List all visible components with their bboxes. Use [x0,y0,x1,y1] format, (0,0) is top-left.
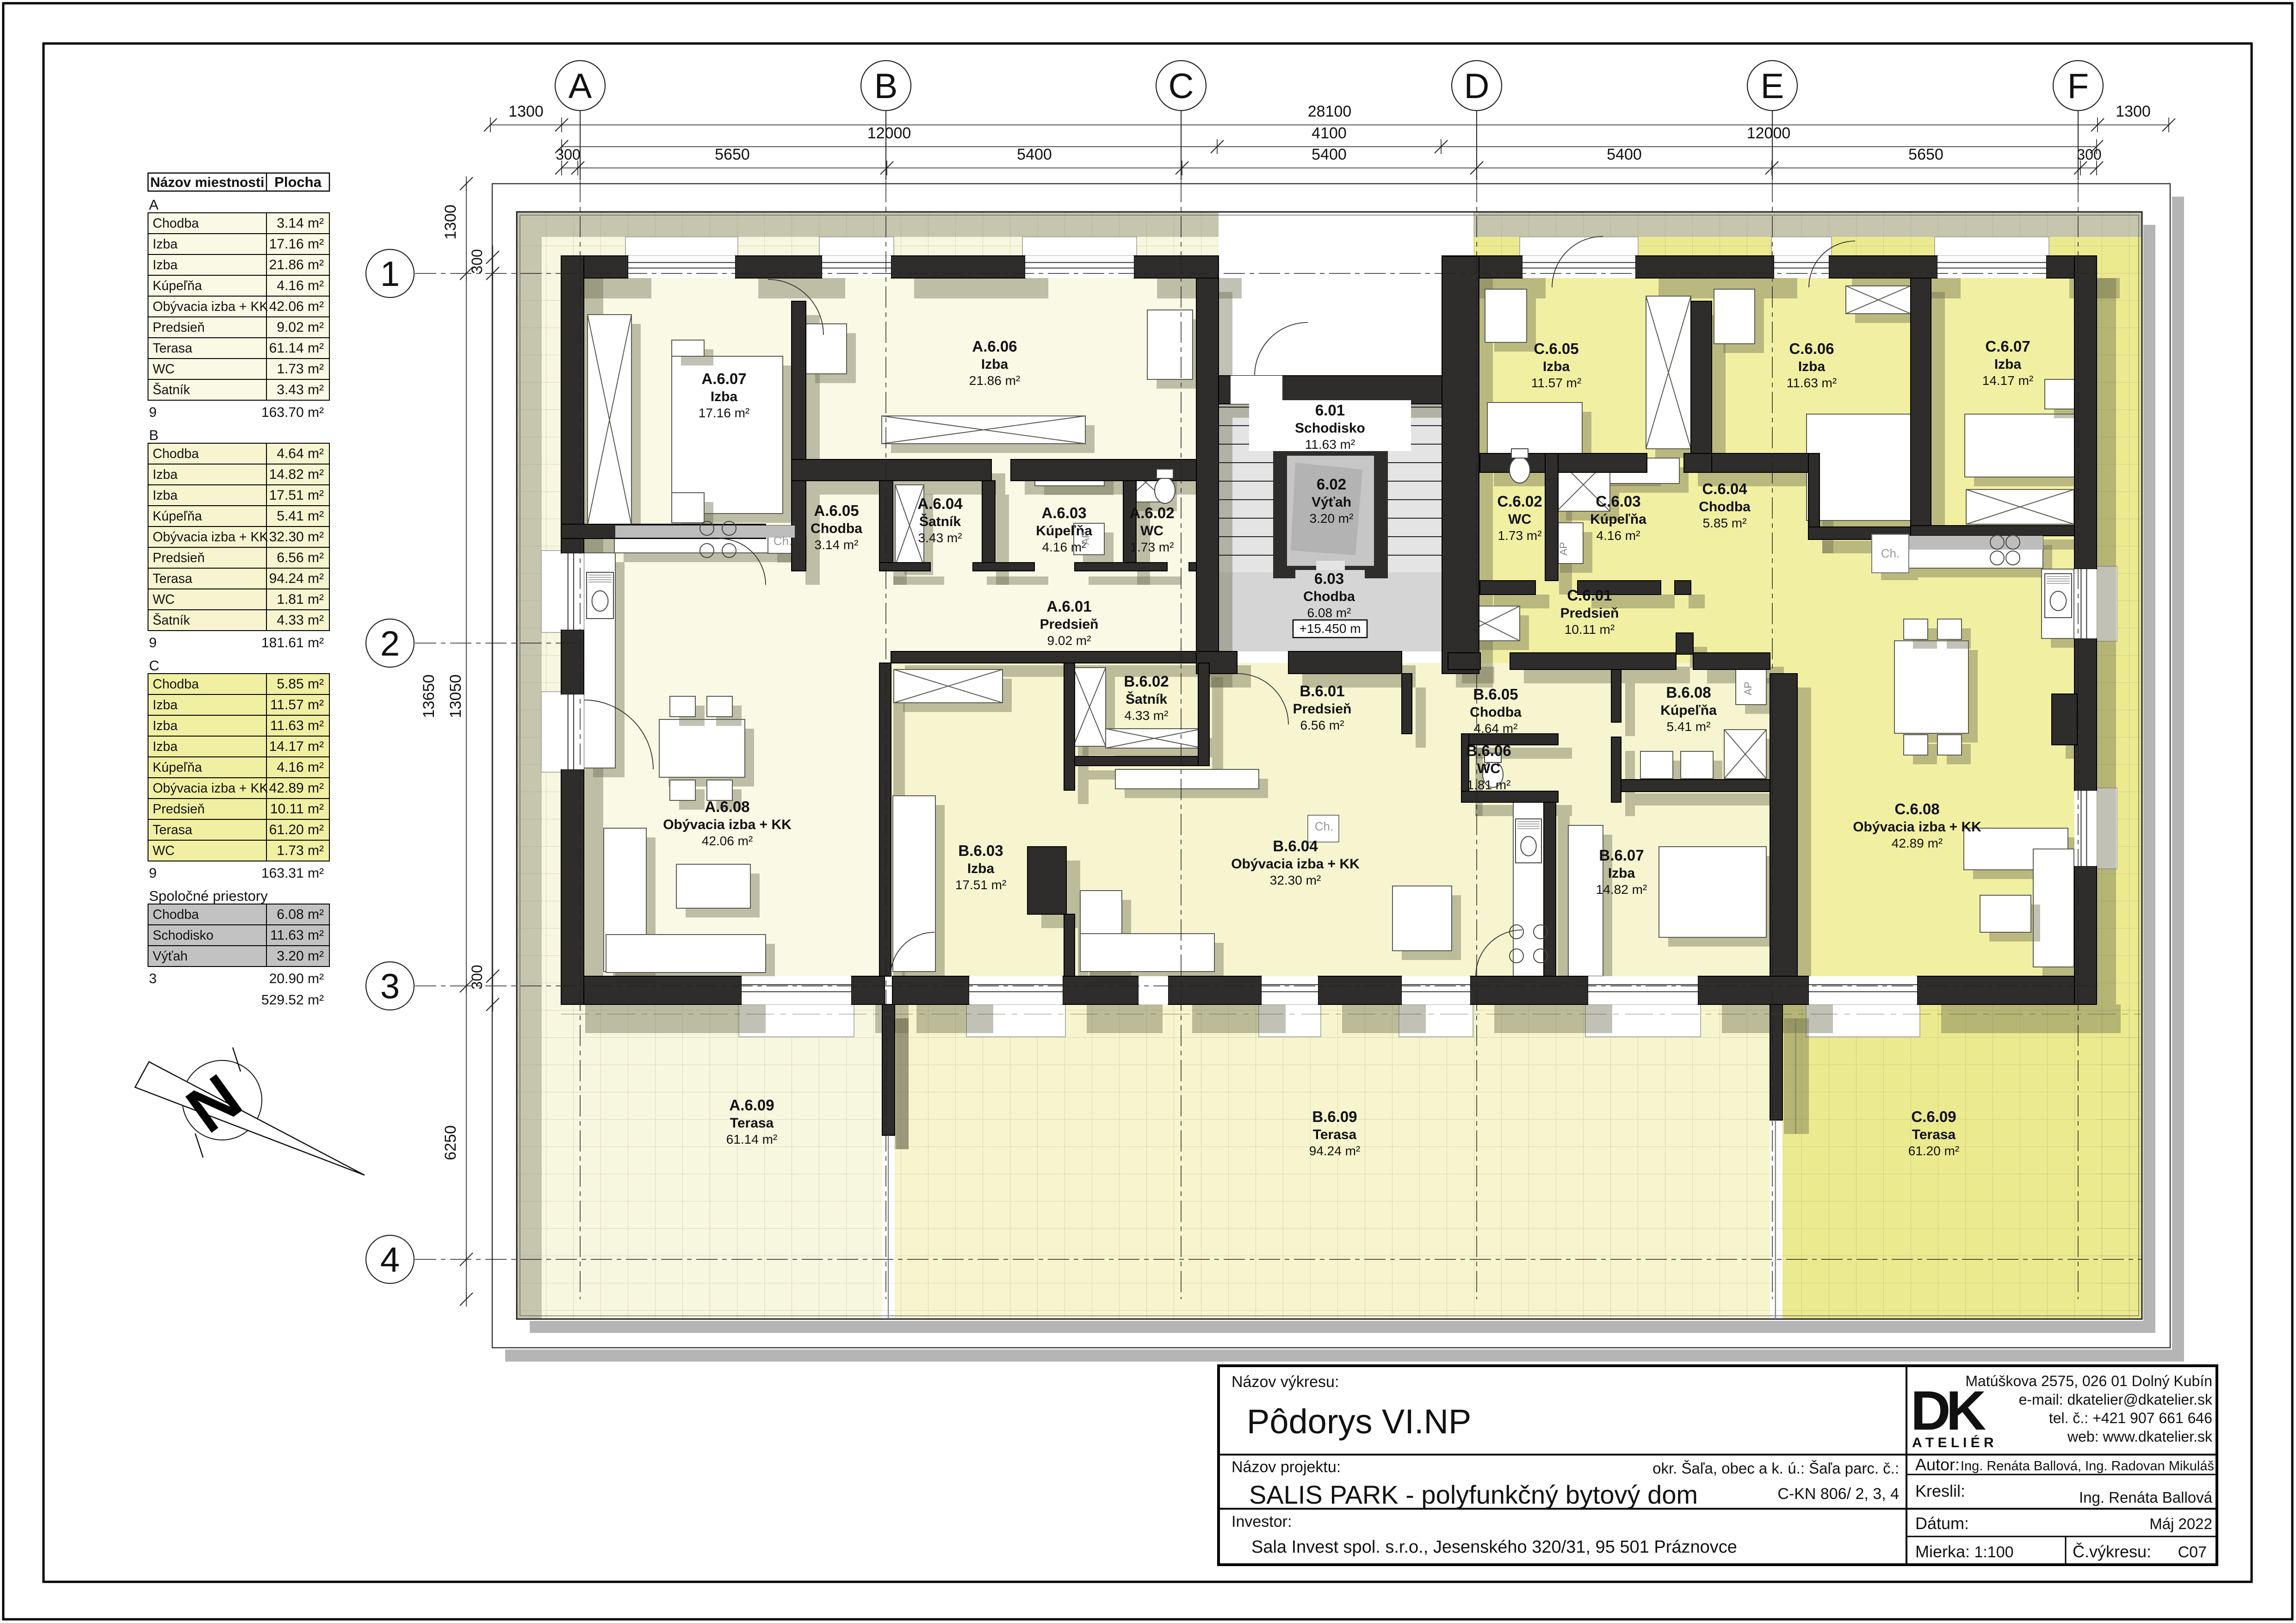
svg-text:WC: WC [153,843,174,858]
svg-text:A.6.06: A.6.06 [972,338,1017,355]
svg-text:Terasa: Terasa [153,823,192,837]
svg-text:5650: 5650 [1908,146,1943,163]
svg-text:300: 300 [469,249,485,273]
svg-text:9: 9 [149,635,157,650]
svg-text:9: 9 [149,866,157,881]
svg-text:1300: 1300 [442,204,459,240]
svg-text:11.63 m²: 11.63 m² [1305,437,1355,452]
svg-text:28100: 28100 [1308,103,1352,120]
svg-text:20.90 m²: 20.90 m² [269,971,324,986]
svg-text:B.6.04: B.6.04 [1273,837,1318,855]
svg-text:13050: 13050 [447,675,464,719]
svg-text:3.43 m²: 3.43 m² [918,531,962,545]
svg-text:21.86 m²: 21.86 m² [269,257,324,273]
svg-text:Výťah: Výťah [153,949,188,964]
svg-text:Chodba: Chodba [153,677,199,692]
svg-text:A.6.04: A.6.04 [917,495,963,512]
svg-text:6.03: 6.03 [1314,570,1344,587]
svg-text:61.14 m²: 61.14 m² [269,341,324,356]
svg-text:42.89 m²: 42.89 m² [269,781,324,796]
svg-text:4.33 m²: 4.33 m² [1125,708,1169,723]
svg-text:AP: AP [1742,681,1754,695]
svg-text:3.20 m²: 3.20 m² [277,948,324,964]
svg-text:Obývacia izba + KK: Obývacia izba + KK [153,781,268,796]
svg-text:tel. č.: +421 907 661 646: tel. č.: +421 907 661 646 [2049,1410,2212,1426]
svg-text:5.41 m²: 5.41 m² [277,508,324,524]
svg-text:A.6.03: A.6.03 [1041,504,1086,521]
svg-text:C.6.03: C.6.03 [1596,493,1640,510]
svg-text:14.82 m²: 14.82 m² [269,467,324,482]
svg-text:Autor:: Autor: [1915,1455,1960,1474]
svg-text:11.63 m²: 11.63 m² [270,928,324,943]
svg-text:e-mail: dkatelier@dkatelier.sk: e-mail: dkatelier@dkatelier.sk [2019,1391,2213,1408]
svg-text:Izba: Izba [153,719,178,733]
svg-text:32.30 m²: 32.30 m² [269,529,324,545]
svg-text:4100: 4100 [1312,124,1347,142]
svg-text:Izba: Izba [967,861,995,876]
svg-text:Chodba: Chodba [811,521,862,536]
svg-text:Predsieň: Predsieň [153,802,204,817]
svg-text:B.6.09: B.6.09 [1312,1108,1357,1125]
svg-text:300: 300 [556,146,580,163]
svg-text:WC: WC [153,592,174,607]
svg-text:B.6.02: B.6.02 [1124,673,1169,690]
svg-text:B: B [149,427,159,443]
svg-text:B.6.05: B.6.05 [1473,686,1518,703]
svg-text:Ch.: Ch. [774,534,792,548]
svg-text:2: 2 [380,624,400,663]
svg-text:+15.450 m: +15.450 m [1299,621,1361,636]
svg-text:6.56 m²: 6.56 m² [277,550,324,565]
svg-text:Izba: Izba [1543,359,1570,374]
svg-text:61.14 m²: 61.14 m² [726,1132,778,1146]
svg-text:529.52 m²: 529.52 m² [261,992,324,1008]
svg-text:5400: 5400 [1607,146,1642,163]
svg-text:Pôdorys VI.NP: Pôdorys VI.NP [1247,1402,1471,1441]
svg-text:Obývacia izba + KK: Obývacia izba + KK [1853,819,1981,835]
svg-text:Šatník: Šatník [153,383,191,397]
svg-text:C: C [149,657,159,674]
svg-text:Predsieň: Predsieň [1560,606,1619,621]
svg-text:Terasa: Terasa [1912,1127,1956,1142]
svg-text:Názov miestnosti: Názov miestnosti [150,175,265,190]
svg-text:A.6.08: A.6.08 [705,798,749,815]
svg-text:Kúpeľňa: Kúpeľňa [1660,703,1717,718]
svg-text:WC: WC [1508,512,1531,527]
svg-text:Chodba: Chodba [153,216,199,231]
svg-text:A T E L I É R: A T E L I É R [1912,1435,1994,1450]
svg-text:A.6.01: A.6.01 [1046,598,1091,615]
svg-text:Spoločné priestory: Spoločné priestory [149,888,268,904]
svg-text:Ch.: Ch. [1881,546,1900,560]
svg-text:Schodisko: Schodisko [1295,421,1365,436]
svg-text:14.82 m²: 14.82 m² [1596,882,1647,897]
svg-text:C.6.05: C.6.05 [1534,340,1578,357]
svg-text:Obývacia izba + KK: Obývacia izba + KK [153,299,268,314]
svg-text:okr. Šaľa, obec a k. ú.: Šaľa: okr. Šaľa, obec a k. ú.: Šaľa parc. č.: [1652,1460,1899,1477]
svg-text:1.73 m²: 1.73 m² [1130,540,1174,554]
svg-text:10.11 m²: 10.11 m² [270,801,324,817]
svg-text:B.6.01: B.6.01 [1300,682,1344,700]
svg-text:C.6.04: C.6.04 [1702,480,1747,497]
svg-text:11.63 m²: 11.63 m² [1787,376,1837,390]
svg-text:Názov projektu:: Názov projektu: [1232,1458,1341,1476]
svg-text:Matúškova 2575, 026 01 Dolný K: Matúškova 2575, 026 01 Dolný Kubín [1965,1373,2212,1389]
svg-text:4.64 m²: 4.64 m² [277,446,324,461]
svg-text:Chodba: Chodba [1470,705,1522,720]
svg-text:11.63 m²: 11.63 m² [270,718,324,733]
svg-text:F: F [2067,67,2089,106]
svg-text:1.73 m²: 1.73 m² [277,843,324,858]
svg-text:Terasa: Terasa [153,571,192,586]
svg-text:WC: WC [1140,523,1163,539]
svg-text:1:100: 1:100 [1974,1543,2013,1561]
svg-text:AP: AP [1080,531,1091,545]
svg-text:Ing. Renáta Ballová: Ing. Renáta Ballová [2079,1489,2213,1506]
svg-text:5650: 5650 [715,146,750,163]
svg-text:Obývacia izba + KK: Obývacia izba + KK [1231,856,1360,872]
svg-text:4.16 m²: 4.16 m² [277,278,324,293]
svg-text:9.02 m²: 9.02 m² [277,320,324,335]
svg-text:A.6.05: A.6.05 [814,502,859,519]
svg-text:4.16 m²: 4.16 m² [1597,528,1640,543]
svg-text:14.17 m²: 14.17 m² [1982,373,2034,388]
svg-text:3: 3 [380,967,400,1006]
svg-text:Izba: Izba [1994,357,2022,372]
svg-text:Predsieň: Predsieň [153,551,204,565]
svg-text:B.6.07: B.6.07 [1599,847,1644,864]
svg-text:C.6.09: C.6.09 [1911,1108,1956,1125]
svg-text:Názov výkresu:: Názov výkresu: [1232,1373,1339,1391]
svg-text:1.73 m²: 1.73 m² [1498,528,1542,543]
svg-text:6250: 6250 [442,1125,459,1160]
svg-text:3.14 m²: 3.14 m² [815,538,859,552]
svg-text:4.33 m²: 4.33 m² [277,613,324,628]
svg-text:17.16 m²: 17.16 m² [269,236,324,252]
svg-text:21.86 m²: 21.86 m² [969,373,1021,388]
svg-text:Izba: Izba [153,698,178,712]
svg-text:163.31 m²: 163.31 m² [261,866,324,881]
svg-text:61.20 m²: 61.20 m² [269,822,324,837]
svg-text:A: A [569,67,592,106]
svg-text:5400: 5400 [1312,146,1347,163]
svg-text:4.64 m²: 4.64 m² [1474,721,1518,736]
svg-text:6.01: 6.01 [1315,402,1345,419]
svg-text:Dátum:: Dátum: [1915,1514,1969,1533]
svg-text:5.41 m²: 5.41 m² [1667,719,1711,734]
svg-text:5400: 5400 [1017,146,1052,163]
svg-text:B.6.06: B.6.06 [1466,742,1511,759]
svg-text:3.43 m²: 3.43 m² [277,382,324,397]
svg-text:Č.výkresu:: Č.výkresu: [2073,1542,2151,1561]
svg-text:Výťah: Výťah [1312,495,1351,510]
svg-text:Kúpeľňa: Kúpeľňa [153,760,202,775]
svg-text:Kreslil:: Kreslil: [1915,1481,1965,1500]
svg-text:C.6.01: C.6.01 [1567,587,1612,604]
svg-text:300: 300 [2077,146,2101,163]
svg-text:Terasa: Terasa [730,1115,774,1131]
svg-text:61.20 m²: 61.20 m² [1908,1144,1960,1158]
svg-text:SALIS PARK - polyfunkčný bytov: SALIS PARK - polyfunkčný bytový dom [1249,1480,1698,1509]
svg-text:A.6.02: A.6.02 [1129,504,1174,521]
svg-text:A.6.07: A.6.07 [701,370,746,387]
svg-text:Chodba: Chodba [153,446,199,461]
svg-text:D: D [1464,67,1490,106]
svg-text:14.17 m²: 14.17 m² [269,739,324,754]
svg-text:13650: 13650 [420,675,438,719]
svg-text:Predsieň: Predsieň [153,320,204,335]
svg-text:C.6.02: C.6.02 [1497,493,1542,510]
svg-text:1300: 1300 [508,103,544,120]
svg-text:42.06 m²: 42.06 m² [269,299,324,314]
svg-text:6.08 m²: 6.08 m² [1307,606,1351,620]
svg-text:5.85 m²: 5.85 m² [1703,516,1747,530]
svg-text:C.6.08: C.6.08 [1894,800,1939,818]
svg-text:42.06 m²: 42.06 m² [702,834,753,848]
svg-text:Ch.: Ch. [1315,819,1333,833]
svg-text:5.85 m²: 5.85 m² [277,676,324,692]
svg-text:C.6.06: C.6.06 [1789,340,1834,357]
svg-text:17.51 m²: 17.51 m² [269,488,324,503]
svg-text:C: C [1169,67,1194,106]
svg-text:Šatník: Šatník [919,514,961,529]
svg-text:Izba: Izba [153,488,178,503]
svg-text:Schodisko: Schodisko [153,928,214,943]
svg-text:Izba: Izba [1608,866,1635,881]
svg-text:Izba: Izba [153,739,178,754]
svg-text:6.02: 6.02 [1317,476,1346,493]
svg-text:Predsieň: Predsieň [1293,701,1352,717]
svg-text:Izba: Izba [1798,359,1826,374]
svg-text:6.08 m²: 6.08 m² [277,907,324,922]
svg-text:94.24 m²: 94.24 m² [269,571,324,586]
svg-text:3.14 m²: 3.14 m² [277,216,324,231]
svg-text:Izba: Izba [153,237,178,252]
svg-text:WC: WC [1477,761,1500,776]
svg-text:Kúpeľňa: Kúpeľňa [153,509,202,524]
svg-text:B.6.08: B.6.08 [1666,684,1711,701]
svg-text:Obývacia izba + KK: Obývacia izba + KK [153,530,268,545]
svg-text:Izba: Izba [711,389,738,404]
svg-text:Chodba: Chodba [1303,589,1355,604]
svg-text:Izba: Izba [153,258,178,273]
svg-text:Plocha: Plocha [274,174,322,190]
svg-text:1300: 1300 [2116,103,2151,120]
svg-text:Šatník: Šatník [153,613,191,628]
svg-text:Terasa: Terasa [153,341,192,356]
svg-text:1.81 m²: 1.81 m² [1467,778,1511,792]
svg-text:17.51 m²: 17.51 m² [955,878,1007,892]
svg-text:B.6.03: B.6.03 [958,842,1003,859]
svg-text:181.61 m²: 181.61 m² [261,635,324,650]
svg-text:1.81 m²: 1.81 m² [277,592,324,607]
svg-text:163.70 m²: 163.70 m² [261,405,324,420]
svg-text:Izba: Izba [981,357,1009,372]
svg-text:Chodba: Chodba [153,907,199,922]
svg-text:6.56 m²: 6.56 m² [1300,718,1344,732]
svg-text:42.89 m²: 42.89 m² [1892,836,1943,850]
svg-text:Máj 2022: Máj 2022 [2149,1515,2212,1532]
svg-text:AP: AP [1558,542,1569,555]
svg-text:Terasa: Terasa [1313,1127,1357,1142]
svg-text:C.6.07: C.6.07 [1985,338,2030,355]
svg-text:17.16 m²: 17.16 m² [699,406,750,420]
svg-text:Obývacia izba + KK: Obývacia izba + KK [663,817,792,832]
svg-text:A: A [149,197,159,213]
svg-text:1.73 m²: 1.73 m² [277,361,324,377]
svg-text:E: E [1761,67,1784,106]
svg-text:B: B [874,67,898,106]
svg-text:10.11 m²: 10.11 m² [1565,622,1615,637]
svg-text:Sala Invest spol. s.r.o., Jese: Sala Invest spol. s.r.o., Jesenského 320… [1251,1537,1737,1557]
svg-text:Investor:: Investor: [1232,1513,1292,1530]
svg-text:Kúpeľňa: Kúpeľňa [153,279,202,293]
svg-text:4.16 m²: 4.16 m² [277,760,324,775]
svg-text:A.6.09: A.6.09 [729,1096,774,1114]
svg-text:C-KN 806/ 2, 3, 4: C-KN 806/ 2, 3, 4 [1777,1485,1899,1503]
svg-text:Predsieň: Predsieň [1040,617,1099,632]
svg-text:Šatník: Šatník [1126,691,1167,707]
svg-text:3: 3 [149,971,157,986]
svg-text:1: 1 [380,254,400,294]
svg-text:9.02 m²: 9.02 m² [1047,633,1091,648]
svg-text:Mierka:: Mierka: [1915,1542,1970,1561]
svg-text:web: www.dkatelier.sk: web: www.dkatelier.sk [2067,1428,2213,1445]
svg-text:32.30 m²: 32.30 m² [1270,873,1321,887]
svg-text:C07: C07 [2178,1543,2207,1561]
svg-text:12000: 12000 [867,124,911,142]
svg-text:Chodba: Chodba [1699,499,1751,514]
svg-text:12000: 12000 [1747,124,1791,142]
svg-text:4: 4 [380,1240,400,1280]
svg-text:Izba: Izba [153,467,178,482]
svg-text:11.57 m²: 11.57 m² [270,697,324,712]
svg-text:11.57 m²: 11.57 m² [1531,376,1581,390]
svg-text:Kúpeľňa: Kúpeľňa [1590,512,1646,527]
svg-text:Ing. Renáta Ballová, Ing. Rado: Ing. Renáta Ballová, Ing. Radovan Mikulá… [1961,1459,2214,1474]
svg-text:WC: WC [153,362,174,377]
svg-text:300: 300 [469,965,485,989]
svg-text:94.24 m²: 94.24 m² [1309,1144,1361,1158]
svg-text:3.20 m²: 3.20 m² [1310,511,1354,526]
svg-text:9: 9 [149,405,157,420]
